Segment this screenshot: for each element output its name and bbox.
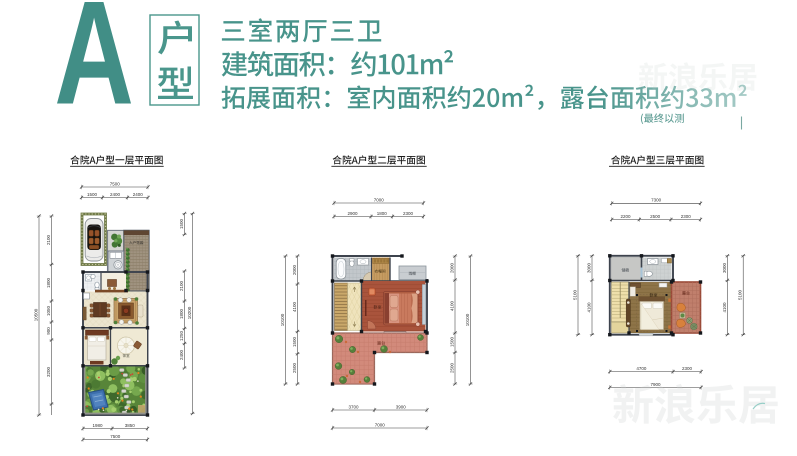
svg-text:2500: 2500 (292, 362, 297, 373)
svg-text:1500: 1500 (179, 218, 184, 229)
svg-text:2900: 2900 (347, 211, 358, 216)
svg-text:900: 900 (46, 327, 51, 335)
svg-text:2200: 2200 (620, 214, 631, 219)
svg-text:4100: 4100 (586, 302, 591, 313)
svg-text:3900: 3900 (396, 404, 407, 409)
svg-text:3850: 3850 (125, 423, 136, 428)
svg-text:2000: 2000 (292, 264, 297, 275)
svg-text:5100: 5100 (738, 289, 743, 300)
svg-text:3200: 3200 (46, 366, 51, 377)
svg-text:1250: 1250 (179, 330, 184, 341)
svg-text:1500: 1500 (449, 336, 454, 347)
svg-text:1500: 1500 (87, 192, 98, 197)
svg-text:7300: 7300 (651, 198, 662, 203)
svg-text:2400: 2400 (133, 192, 144, 197)
svg-text:2300: 2300 (681, 214, 692, 219)
svg-text:4100: 4100 (292, 301, 297, 312)
svg-text:3000: 3000 (586, 262, 591, 273)
svg-text:10100: 10100 (280, 313, 285, 326)
svg-text:2100: 2100 (179, 280, 184, 291)
svg-text:3000: 3000 (722, 262, 727, 273)
svg-text:7000: 7000 (375, 422, 386, 427)
svg-text:1800: 1800 (46, 277, 51, 288)
svg-text:2400: 2400 (110, 192, 121, 197)
svg-text:1050: 1050 (46, 305, 51, 316)
svg-text:2000: 2000 (449, 262, 454, 273)
svg-text:1800: 1800 (179, 308, 184, 319)
svg-text:2400: 2400 (179, 349, 184, 360)
svg-text:10200: 10200 (187, 306, 192, 319)
svg-text:7500: 7500 (110, 181, 121, 186)
svg-text:10500: 10500 (33, 308, 38, 321)
svg-text:2500: 2500 (650, 214, 661, 219)
svg-text:10100: 10100 (465, 313, 470, 326)
svg-text:7000: 7000 (374, 197, 385, 202)
svg-text:3700: 3700 (348, 404, 359, 409)
svg-text:4100: 4100 (449, 300, 454, 311)
svg-text:4700: 4700 (636, 366, 647, 371)
svg-text:1800: 1800 (377, 211, 388, 216)
svg-text:4100: 4100 (722, 302, 727, 313)
svg-text:7500: 7500 (110, 434, 121, 439)
svg-text:5100: 5100 (572, 289, 577, 300)
svg-text:7900: 7900 (650, 382, 661, 387)
svg-text:1500: 1500 (292, 336, 297, 347)
svg-text:2300: 2300 (403, 211, 414, 216)
svg-text:2100: 2100 (46, 234, 51, 245)
svg-text:2500: 2500 (449, 362, 454, 373)
svg-text:2300: 2300 (682, 366, 693, 371)
svg-text:1980: 1980 (92, 423, 103, 428)
